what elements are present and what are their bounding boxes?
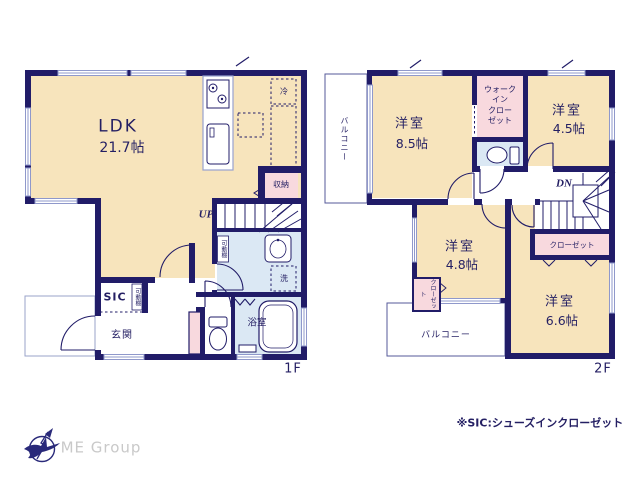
fridge-label: 冷 [280, 88, 288, 96]
storage-label: 収納 [273, 181, 289, 189]
toilet-icon-2f [487, 147, 519, 164]
bath-label: 浴室 [247, 318, 266, 328]
stairs-down-label: DN [556, 179, 572, 190]
room85-size: 8.5帖 [396, 138, 428, 151]
stove-icon [207, 80, 229, 108]
floor1-plan [25, 57, 307, 360]
vanity-icon [265, 235, 291, 262]
stairs-down [535, 168, 615, 229]
kitchen-counter [203, 76, 233, 170]
floor1-label: 1F [284, 363, 302, 376]
entrance-door [61, 316, 95, 350]
shoe-cabinet [189, 312, 201, 354]
balcony-south-label: バルコニー [421, 332, 471, 341]
room85-name: 洋室 [395, 118, 425, 131]
toilet2-door [480, 169, 504, 193]
sic-note: ※SIC:シューズインクローゼット [457, 418, 624, 429]
shelf-label-sic: 可動棚 [134, 288, 140, 306]
vent-tick-1f [236, 57, 249, 66]
stairs-up-label: UP [199, 210, 214, 221]
genkan-label: 玄関 [111, 331, 133, 341]
balcony-south-outline [387, 303, 505, 356]
room45-size: 4.5帖 [553, 123, 585, 136]
balcony-west-label: バルコニー [340, 117, 348, 162]
room45-name: 洋室 [552, 105, 582, 118]
room66-floor [511, 205, 609, 353]
room48-name: 洋室 [445, 241, 475, 254]
compass-logo [24, 428, 60, 462]
room66-size: 6.6帖 [546, 315, 578, 328]
porch-outline [25, 296, 95, 356]
sic-label: SIC [103, 292, 126, 303]
logo-text: ME Group [61, 441, 142, 456]
room48-size: 4.8帖 [446, 259, 478, 272]
washer-label: 洗 [280, 275, 288, 283]
ldk-name: LDK [98, 119, 138, 136]
kitchen-sink-icon [207, 124, 229, 164]
room66-name: 洋室 [545, 296, 575, 309]
shelf-label-washroom: 可動棚 [220, 240, 226, 258]
vent-ticks-2f [410, 60, 573, 68]
ldk-size: 21.7帖 [99, 141, 144, 155]
toilet-icon-1f [209, 317, 227, 350]
floor2-label: 2F [594, 363, 612, 376]
closet-east-label: クローゼット [550, 241, 595, 249]
closet-sw-label: クローゼット [417, 279, 437, 309]
floorplan-page: LDK 21.7帖 冷 収納 UP 可動棚 可動棚 SIC 玄関 洗 浴室 1F… [0, 0, 640, 480]
floorplan-graphic [0, 0, 640, 480]
wic-label: ウォーク イン クロー ゼット [484, 85, 516, 127]
